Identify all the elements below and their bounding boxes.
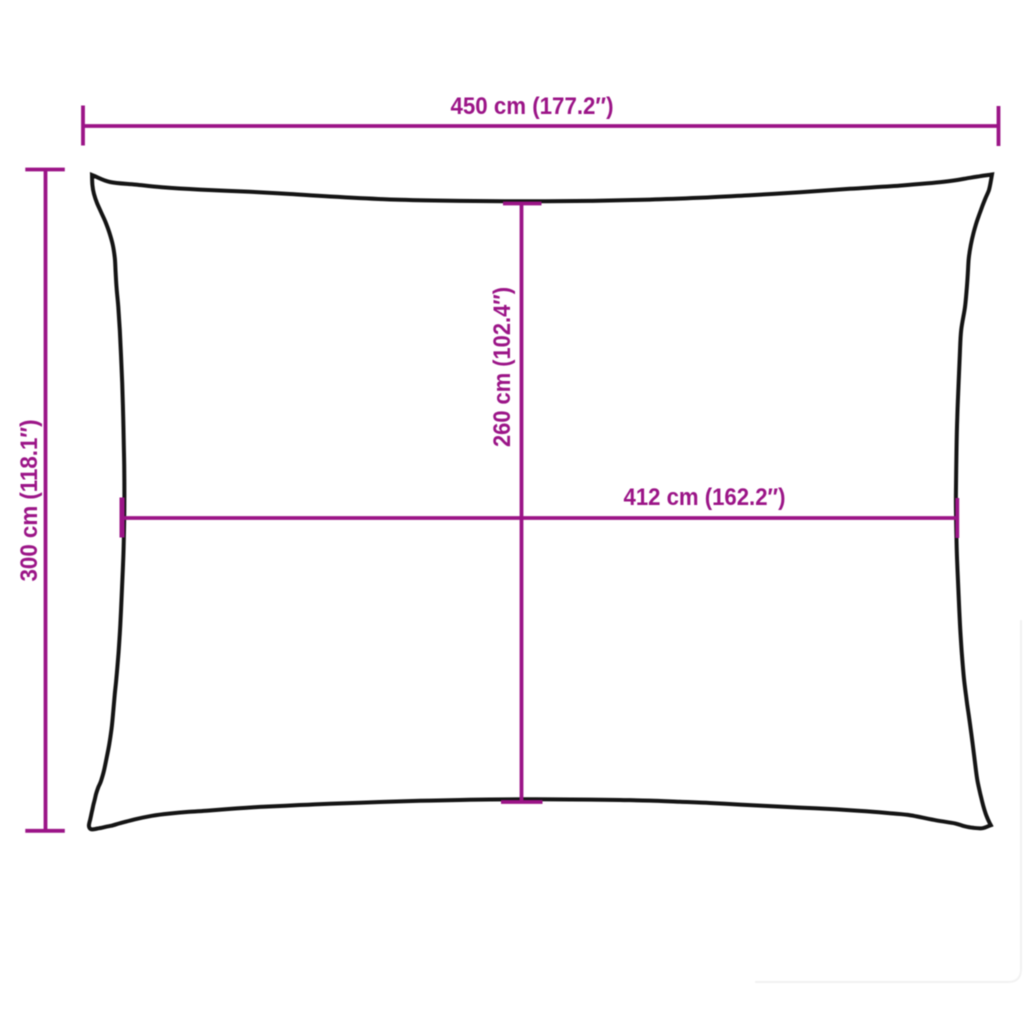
svg-text:450 cm (177.2″): 450 cm (177.2″): [451, 93, 614, 120]
svg-text:300 cm (118.1″): 300 cm (118.1″): [16, 420, 43, 582]
svg-text:412 cm (162.2″): 412 cm (162.2″): [624, 484, 786, 511]
svg-text:260 cm (102.4″): 260 cm (102.4″): [489, 287, 516, 447]
